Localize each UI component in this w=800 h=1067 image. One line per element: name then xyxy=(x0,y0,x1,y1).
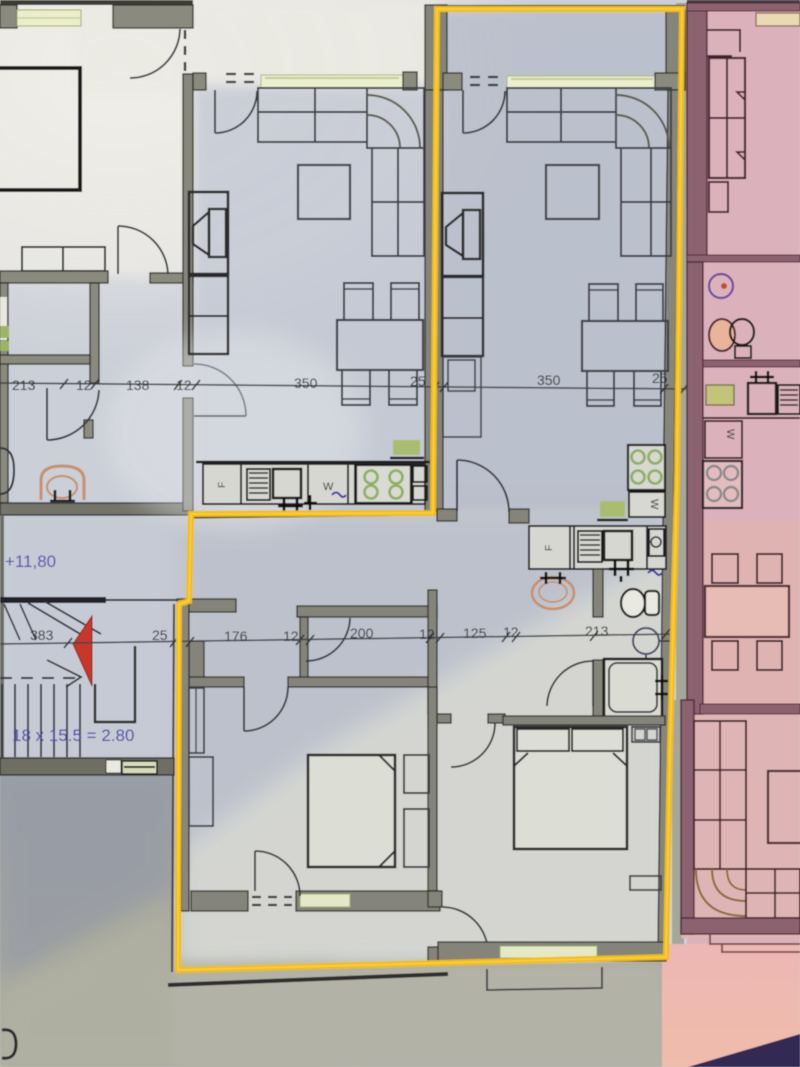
svg-text:12: 12 xyxy=(176,377,192,393)
svg-text:W: W xyxy=(648,499,660,510)
svg-text:12: 12 xyxy=(283,628,299,644)
svg-text:138: 138 xyxy=(126,377,150,393)
svg-text:213: 213 xyxy=(585,623,609,639)
svg-text:12: 12 xyxy=(76,377,92,393)
svg-text:350: 350 xyxy=(294,375,318,391)
svg-text:213: 213 xyxy=(12,377,36,393)
svg-text:25: 25 xyxy=(152,627,168,643)
svg-text:W: W xyxy=(724,429,736,440)
svg-text:0, +11,80: 0, +11,80 xyxy=(0,552,56,571)
svg-text:W: W xyxy=(323,481,334,493)
svg-text:176: 176 xyxy=(224,628,248,644)
svg-text:25: 25 xyxy=(410,373,426,389)
svg-text:F: F xyxy=(544,545,555,551)
svg-text:383: 383 xyxy=(30,627,54,643)
svg-text:F: F xyxy=(217,482,228,488)
svg-text:125: 125 xyxy=(463,625,487,641)
svg-text:12: 12 xyxy=(503,624,519,640)
svg-text:200: 200 xyxy=(350,625,374,641)
svg-text:350: 350 xyxy=(537,372,561,388)
svg-text:12: 12 xyxy=(419,626,435,642)
svg-text:25: 25 xyxy=(652,370,668,386)
svg-text:18 x 15.5 = 2.80: 18 x 15.5 = 2.80 xyxy=(12,726,134,745)
